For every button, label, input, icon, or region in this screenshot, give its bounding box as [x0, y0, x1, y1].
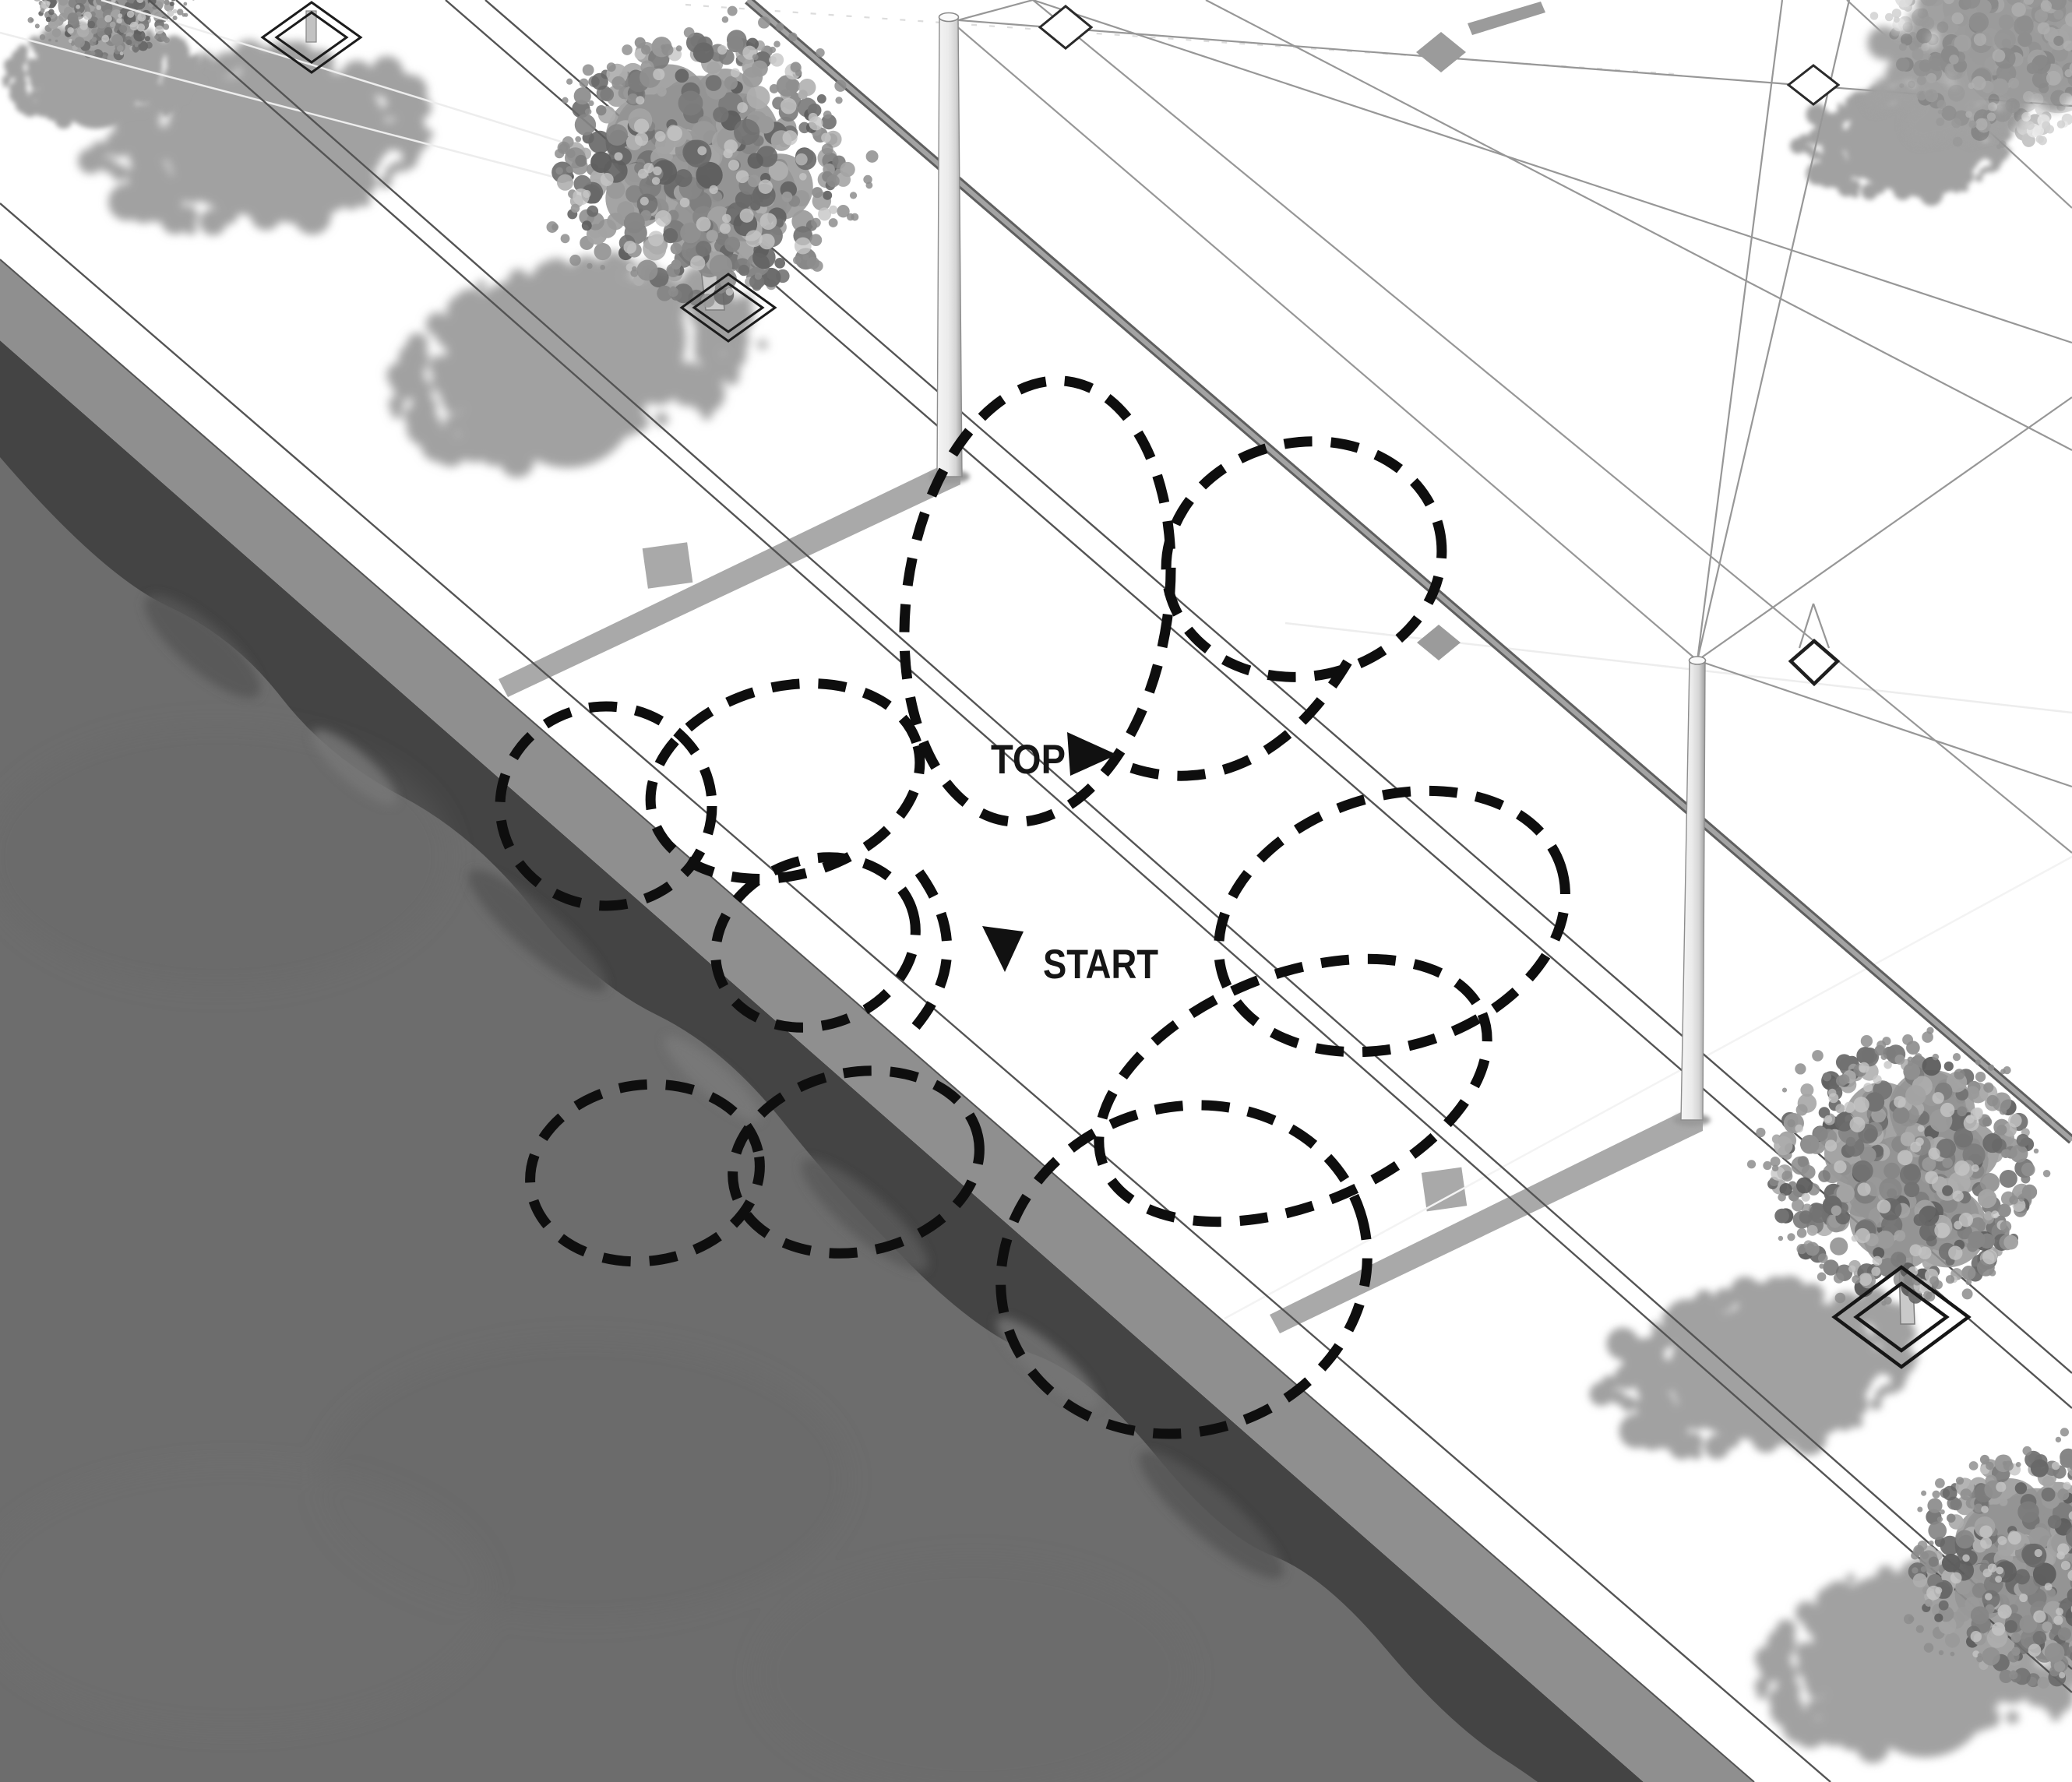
svg-text:START: START	[1043, 942, 1158, 988]
svg-text:TOP: TOP	[991, 737, 1066, 783]
